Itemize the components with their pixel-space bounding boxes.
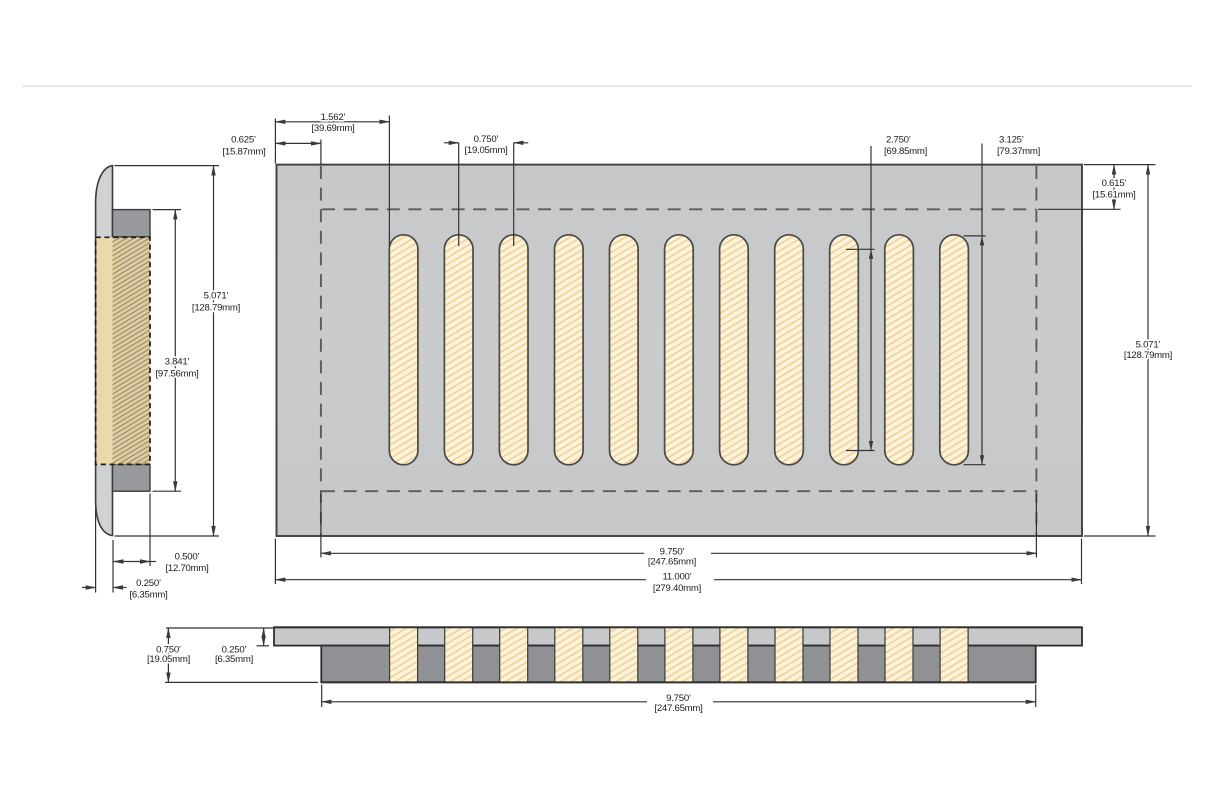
svg-text:0.625’: 0.625’ <box>231 135 256 146</box>
svg-text:[19.05mm]: [19.05mm] <box>147 654 190 665</box>
svg-text:[247.65mm]: [247.65mm] <box>654 703 702 714</box>
svg-text:[279.40mm]: [279.40mm] <box>653 583 701 594</box>
svg-text:[6.35mm]: [6.35mm] <box>130 590 168 601</box>
svg-text:3.841’: 3.841’ <box>165 357 190 368</box>
svg-text:2.750’: 2.750’ <box>886 135 911 146</box>
svg-text:0.500’: 0.500’ <box>175 552 200 563</box>
svg-text:[39.69mm]: [39.69mm] <box>311 123 354 134</box>
svg-text:[79.37mm]: [79.37mm] <box>997 146 1040 157</box>
svg-text:[15.61mm]: [15.61mm] <box>1092 190 1135 201</box>
svg-text:[128.79mm]: [128.79mm] <box>1124 350 1172 361</box>
svg-text:[12.70mm]: [12.70mm] <box>165 563 208 574</box>
svg-text:[128.79mm]: [128.79mm] <box>192 303 240 314</box>
svg-text:[15.87mm]: [15.87mm] <box>222 146 265 157</box>
svg-text:[6.35mm]: [6.35mm] <box>215 654 253 665</box>
svg-text:0.615’: 0.615’ <box>1102 178 1127 189</box>
svg-text:11.000’: 11.000’ <box>662 571 691 582</box>
svg-text:1.562’: 1.562’ <box>321 112 346 123</box>
svg-text:[69.85mm]: [69.85mm] <box>884 146 927 157</box>
svg-text:5.071’: 5.071’ <box>204 291 229 302</box>
svg-text:0.250’: 0.250’ <box>136 578 161 589</box>
svg-text:0.750’: 0.750’ <box>474 134 499 145</box>
svg-text:3.125’: 3.125’ <box>999 135 1024 146</box>
svg-text:[97.56mm]: [97.56mm] <box>155 369 198 380</box>
svg-text:[19.05mm]: [19.05mm] <box>464 145 507 156</box>
svg-text:[247.65mm]: [247.65mm] <box>648 556 696 567</box>
